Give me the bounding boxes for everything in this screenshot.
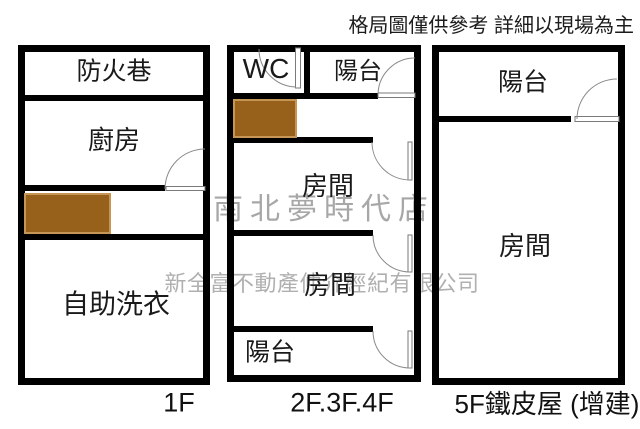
234f-stairs-block [234,100,296,137]
wc-door-leaf [296,48,301,88]
1f-stairs-block [25,194,110,233]
room-label-balcony-bottom: 陽台 [245,341,295,366]
room-label-room-5f: 房間 [499,233,551,259]
234f-top-balcony-door-arc [378,58,415,95]
5f-balcony-door-leaf [575,117,619,122]
234f-room2-door-arc [373,235,410,272]
floor-label-234f: 2F.3F.4F [290,390,394,417]
5f-outer-wall [436,49,622,382]
room-label-room-2: 房間 [304,272,356,298]
floor-234f-plan [230,48,418,379]
floorplan-canvas: 南北夢時代店 新全富不動產仲介經紀有限公司 [0,0,640,429]
room-label-balcony-top: 陽台 [334,60,382,84]
room-label-fire-lane: 防火巷 [76,60,151,85]
234f-room1-door-arc [372,142,410,180]
234f-bottom-balcony-door-leaf [408,331,412,368]
floor-1f-plan [21,49,207,382]
234f-room2-door-leaf [408,235,412,272]
234f-top-balcony-door-leaf [378,93,415,98]
room-label-balcony-5f: 陽台 [498,71,548,96]
234f-bottom-balcony-door-arc [373,331,410,368]
floor-label-5f: 5F鐵皮屋 (增建) [455,391,640,417]
room-label-room-1: 房間 [302,173,354,199]
room-label-kitchen: 廚房 [88,127,140,153]
234f-room1-door-leaf [408,142,412,180]
5f-balcony-door-arc [577,79,617,119]
floor-label-1f: 1F [163,390,195,417]
floor-5f-plan [435,49,622,382]
disclaimer-text: 格局圖僅供參考 詳細以現場為主 [348,9,634,38]
room-label-laundry: 自助洗衣 [62,292,170,319]
1f-kitchen-door-arc [165,149,205,189]
1f-kitchen-door-leaf [166,187,205,191]
room-label-wc: WC [243,55,290,83]
